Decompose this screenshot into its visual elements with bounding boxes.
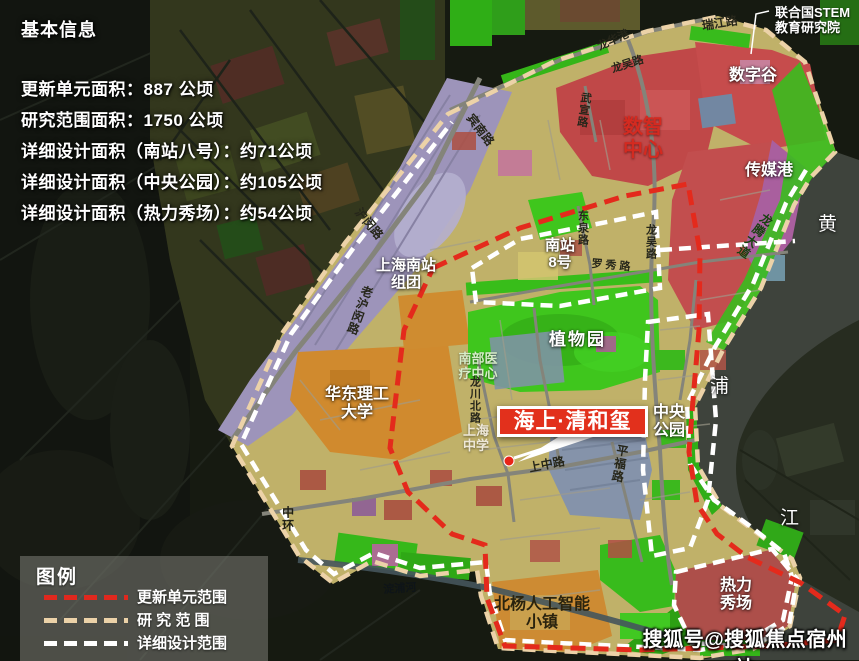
stat-update-unit-area: 更新单元面积：887 公顷: [21, 74, 322, 105]
stat-detail-area-central-park: 详细设计面积（中央公园）：约105公顷: [21, 167, 322, 198]
legend-label-research: 研 究 范 围: [137, 611, 210, 631]
stat-detail-area-thermal-show: 详细设计面积（热力秀场）：约54公顷: [21, 198, 322, 229]
legend-label-update-unit: 更新单元范围: [137, 588, 227, 608]
info-panel-title: 基本信息: [21, 16, 322, 42]
stat-research-area: 研究范围面积：1750 公顷: [21, 105, 322, 136]
site-location-dot: [504, 456, 514, 466]
info-panel: 基本信息 更新单元面积：887 公顷 研究范围面积：1750 公顷 详细设计面积…: [21, 16, 322, 229]
legend-title: 图例: [36, 562, 78, 589]
stem-institute-annotation: 联合国STEM 教育研究院: [775, 5, 855, 35]
stat-detail-area-south-station: 详细设计面积（南站八号）：约71公顷: [21, 136, 322, 167]
planning-map-screenshot: 瑞江路 龙华港 龙吴路 数字谷 数智 中心 传媒港 武宣路 宾南路 沪闵路 上海…: [0, 0, 859, 661]
legend-swatch-research: [44, 618, 128, 623]
watermark: 搜狐号@搜狐焦点宿州站: [636, 623, 854, 661]
legend-panel: 图例 更新单元范围 研 究 范 围 详细设计范围: [20, 556, 268, 661]
legend-label-detail-design: 详细设计范围: [137, 634, 227, 654]
site-marker-box: 海上·清和玺: [497, 406, 648, 437]
legend-swatch-detail-design: [44, 641, 128, 646]
legend-swatch-update-unit: [44, 595, 128, 600]
